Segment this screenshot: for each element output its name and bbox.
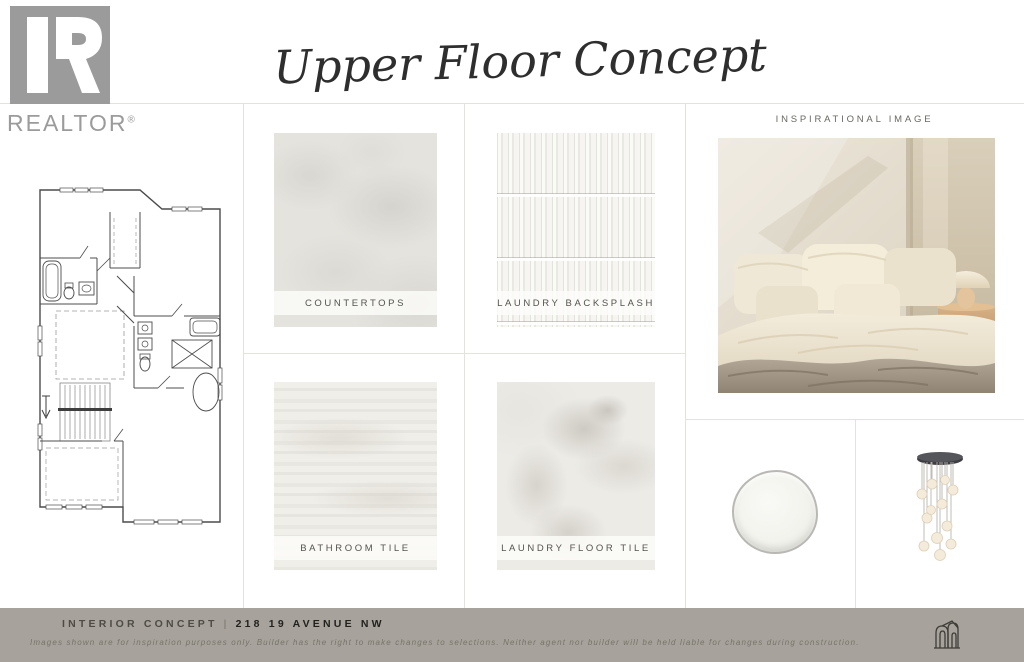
registered-mark: ® (128, 114, 137, 125)
realtor-wordmark-text: REALTOR (7, 110, 128, 136)
realtor-wordmark: REALTOR® (7, 110, 137, 137)
divider-line (0, 103, 1024, 104)
floor-plan-image (22, 176, 232, 539)
swatch-label-laundry-floor-tile: LAUNDRY FLOOR TILE (497, 536, 655, 560)
swatch-label-laundry-backsplash: LAUNDRY BACKSPLASH (497, 291, 655, 315)
footer-project-label: INTERIOR CONCEPT (62, 618, 218, 630)
footer-disclaimer: Images shown are for inspiration purpose… (30, 638, 860, 647)
footer-separator: | (218, 618, 236, 630)
swatch-label-countertops: COUNTERTOPS (274, 291, 437, 315)
footer-address: 218 19 AVENUE NW (236, 618, 385, 630)
swatch-bathroom-tile: BATHROOM TILE (274, 382, 437, 570)
divider-line (243, 353, 685, 354)
page-title: Upper Floor Concept (249, 27, 790, 95)
swatch-countertops: COUNTERTOPS (274, 133, 437, 327)
footer-title: INTERIOR CONCEPT|218 19 AVENUE NW (62, 618, 385, 630)
paint-swatch (732, 470, 818, 554)
footer-bar: INTERIOR CONCEPT|218 19 AVENUE NW Images… (0, 608, 1024, 662)
divider-line (243, 103, 244, 608)
divider-line (685, 103, 686, 608)
realtor-logo-icon (10, 6, 110, 104)
pendant-light-image (910, 450, 970, 570)
house-icon (928, 616, 966, 659)
bedroom-photo (718, 138, 995, 393)
swatch-label-bathroom-tile: BATHROOM TILE (274, 536, 437, 560)
divider-line (464, 103, 465, 608)
concept-board-page: REALTOR® Upper Floor Concept (0, 0, 1024, 662)
swatch-laundry-backsplash: LAUNDRY BACKSPLASH (497, 133, 655, 327)
inspirational-image-header: INSPIRATIONAL IMAGE (685, 114, 1024, 125)
swatch-laundry-floor-tile: LAUNDRY FLOOR TILE (497, 382, 655, 570)
divider-line (855, 419, 856, 608)
